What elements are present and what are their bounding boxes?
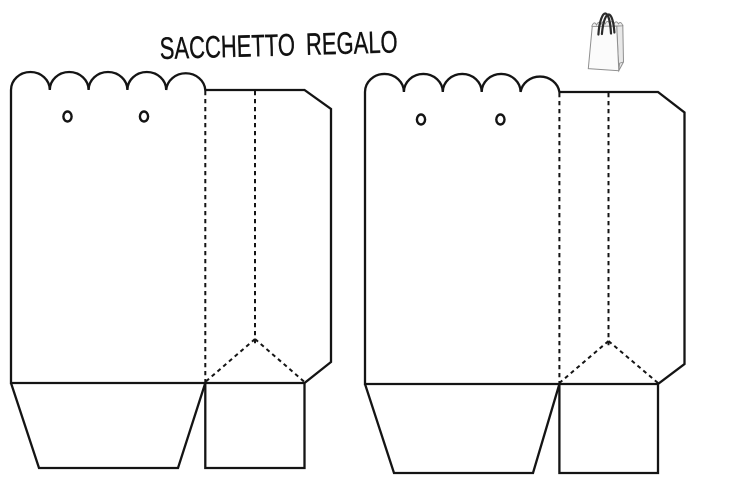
svg-text:SACCHETTO REGALO: SACCHETTO REGALO (159, 24, 398, 66)
